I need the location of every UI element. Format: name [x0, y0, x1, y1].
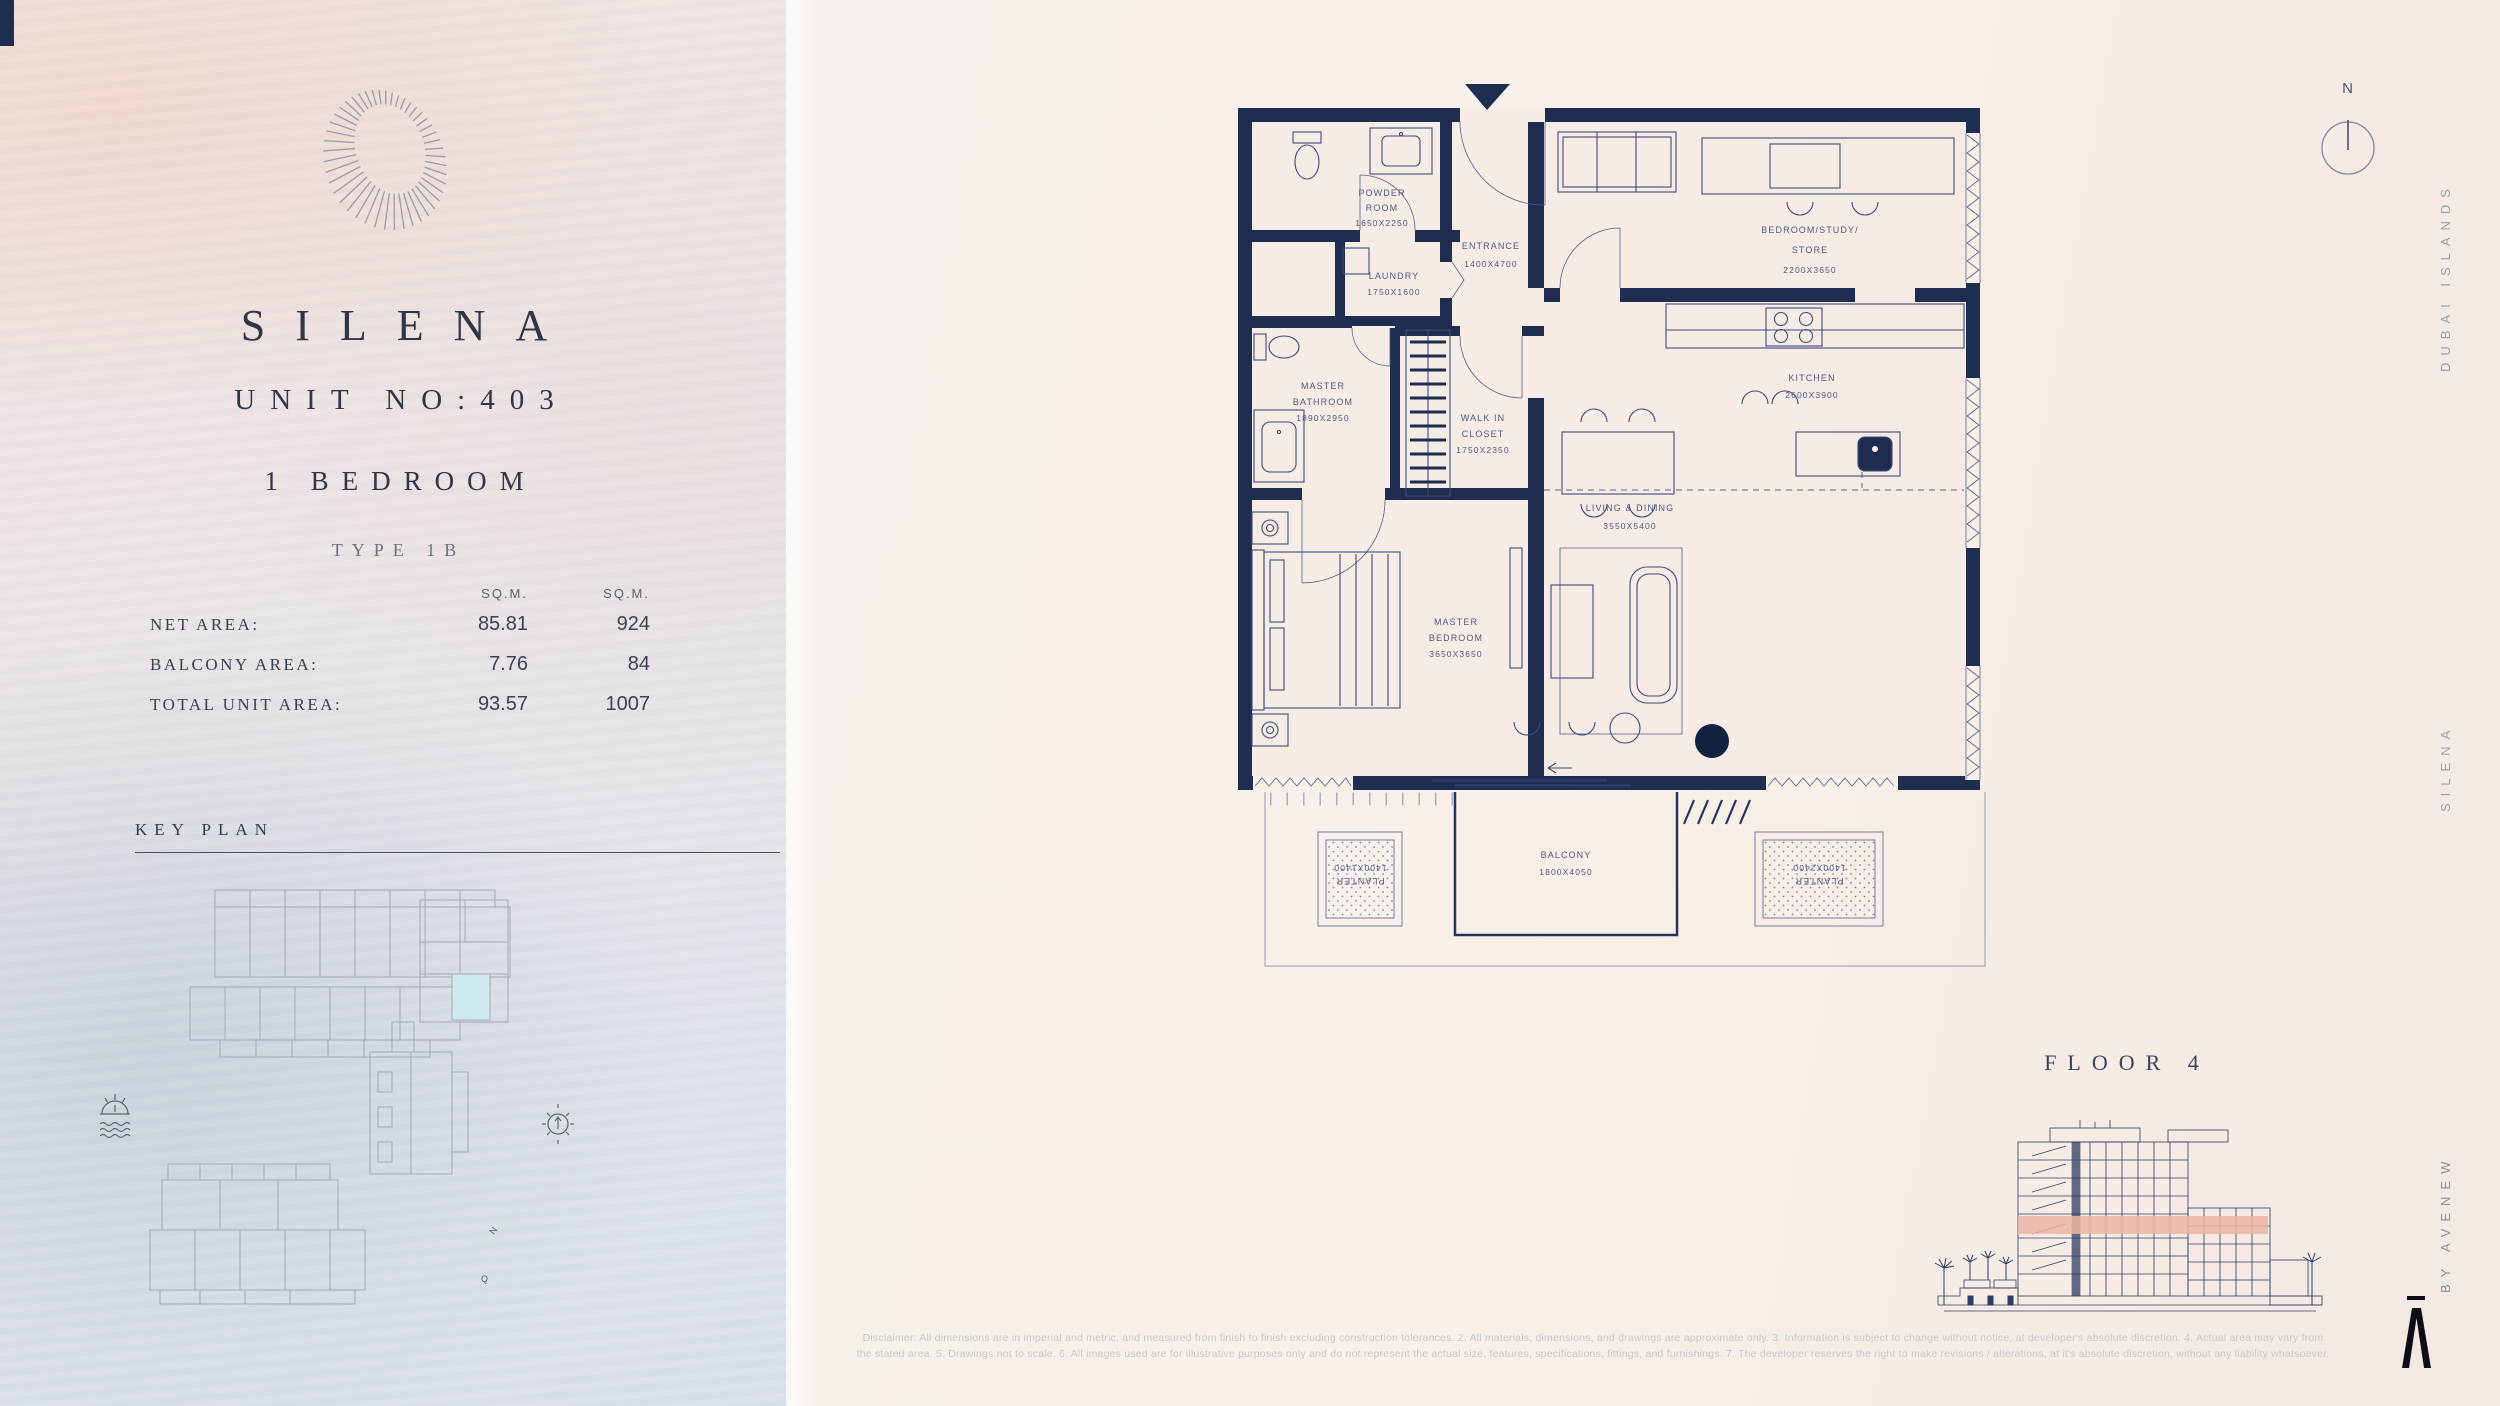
svg-text:BEDROOM: BEDROOM	[1429, 633, 1483, 643]
compass-north-label: N	[2300, 80, 2396, 97]
table-row-total-area: TOTAL UNIT AREA: 93.57 1007	[150, 693, 650, 716]
net-area-sqft: 924	[528, 613, 650, 636]
svg-text:BEDROOM/STUDY/: BEDROOM/STUDY/	[1761, 225, 1858, 235]
svg-text:2600X3900: 2600X3900	[1785, 390, 1838, 400]
rail-silena: SILENA	[2438, 592, 2453, 812]
column-dot	[1695, 724, 1729, 758]
svg-text:1400X4700: 1400X4700	[1464, 259, 1517, 269]
net-area-sqm: 85.81	[406, 613, 528, 636]
plant-slashes	[1684, 800, 1750, 824]
key-plan-rule	[135, 852, 780, 853]
entrance-marker-triangle	[1465, 84, 1510, 110]
avenew-logo-icon	[2398, 1294, 2438, 1374]
svg-text:PLANTER: PLANTER	[1794, 876, 1843, 886]
svg-text:BALCONY: BALCONY	[1541, 850, 1592, 860]
highlighted-floor-band	[2018, 1216, 2268, 1234]
svg-text:POWDER: POWDER	[1358, 188, 1405, 198]
disclaimer-line-1: Disclaimer: All dimensions are in imperi…	[828, 1330, 2358, 1346]
area-table-header: SQ.M. SQ.M.	[150, 586, 650, 601]
svg-text:3650X3650: 3650X3650	[1429, 649, 1482, 659]
svg-text:1800X4050: 1800X4050	[1539, 867, 1592, 877]
disclaimer: Disclaimer: All dimensions are in imperi…	[828, 1330, 2358, 1362]
balcony-area-sqm: 7.76	[406, 653, 528, 676]
svg-text:3550X5400: 3550X5400	[1603, 521, 1656, 531]
col-header-sqm: SQ.M.	[406, 586, 528, 601]
total-area-sqm: 93.57	[406, 693, 528, 716]
floor-plan-drawing: POWDER ROOM 1650X2250 LAUNDRY 1750X1600 …	[1210, 80, 2030, 980]
svg-text:1890X2950: 1890X2950	[1296, 413, 1349, 423]
svg-text:LAUNDRY: LAUNDRY	[1369, 271, 1420, 281]
area-table: SQ.M. SQ.M. NET AREA: 85.81 924 BALCONY …	[150, 586, 650, 733]
svg-text:2200X3650: 2200X3650	[1783, 265, 1836, 275]
sun-icon	[542, 1104, 574, 1144]
key-plan-highlighted-unit	[452, 974, 490, 1020]
brand-title: SILENA	[0, 300, 788, 351]
sunset-sea-icon	[100, 1094, 130, 1138]
svg-text:MASTER: MASTER	[1434, 617, 1478, 627]
disclaimer-line-2: the stated area. 5. Drawings not to scal…	[828, 1346, 2358, 1362]
table-row-balcony-area: BALCONY AREA: 7.76 84	[150, 653, 650, 676]
silena-spiral-logo-icon	[295, 50, 485, 248]
svg-text:MASTER: MASTER	[1301, 381, 1345, 391]
svg-text:1650X2250: 1650X2250	[1355, 218, 1408, 228]
svg-text:1400X2400: 1400X2400	[1792, 863, 1845, 873]
svg-text:1750X1600: 1750X1600	[1367, 287, 1420, 297]
svg-text:ROOM: ROOM	[1366, 203, 1398, 213]
table-row-net-area: NET AREA: 85.81 924	[150, 613, 650, 636]
panel-edge-fade	[786, 0, 816, 1406]
svg-text:PLANTER: PLANTER	[1335, 876, 1384, 886]
building-elevation	[1930, 1100, 2330, 1315]
unit-type: TYPE 1B	[0, 540, 788, 561]
svg-text:BATHROOM: BATHROOM	[1293, 397, 1353, 407]
key-plan-title: KEY PLAN	[135, 820, 274, 840]
svg-text:CLOSET: CLOSET	[1462, 429, 1505, 439]
floor-title: FLOOR 4	[1972, 1050, 2272, 1076]
col-header-sqm-2: SQ.M.	[528, 586, 650, 601]
balcony-floor-fill	[1457, 792, 1675, 935]
svg-text:1400X1400: 1400X1400	[1333, 863, 1386, 873]
key-plan-north-letter: N	[487, 1224, 500, 1236]
key-plan-unit-block	[420, 900, 508, 1022]
sliding-door	[1432, 779, 1607, 782]
key-plan-middle-tower	[370, 1022, 468, 1174]
unit-number: UNIT NO:403	[0, 384, 788, 417]
bedroom-count: 1 BEDROOM	[0, 466, 788, 497]
svg-text:STORE: STORE	[1792, 245, 1828, 255]
balcony-area-sqft: 84	[528, 653, 650, 676]
island-sink	[1858, 437, 1892, 471]
rail-dubai-islands: DUBAI ISLANDS	[2438, 52, 2453, 372]
windows-right	[1965, 133, 1981, 780]
row-label: TOTAL UNIT AREA:	[150, 695, 406, 715]
total-area-sqft: 1007	[528, 693, 650, 716]
row-label: BALCONY AREA:	[150, 655, 406, 675]
svg-text:ENTRANCE: ENTRANCE	[1462, 241, 1520, 251]
svg-text:1750X2350: 1750X2350	[1456, 445, 1509, 455]
key-plan-q-letter: Q	[481, 1274, 489, 1284]
compass-icon	[2310, 108, 2390, 188]
corner-mark	[0, 0, 14, 46]
rail-by-avenew: BY AVENEW	[2438, 1068, 2453, 1293]
svg-text:WALK IN: WALK IN	[1461, 413, 1505, 423]
brochure-page: SILENA UNIT NO:403 1 BEDROOM TYPE 1B SQ.…	[0, 0, 2500, 1406]
svg-text:KITCHEN: KITCHEN	[1788, 373, 1835, 383]
key-plan-lower-building	[150, 1164, 365, 1304]
row-label: NET AREA:	[150, 615, 406, 635]
svg-text:LIVING & DINING: LIVING & DINING	[1586, 503, 1675, 513]
key-plan-drawing: N Q	[100, 862, 780, 1342]
elevation-palms	[1935, 1251, 2321, 1305]
